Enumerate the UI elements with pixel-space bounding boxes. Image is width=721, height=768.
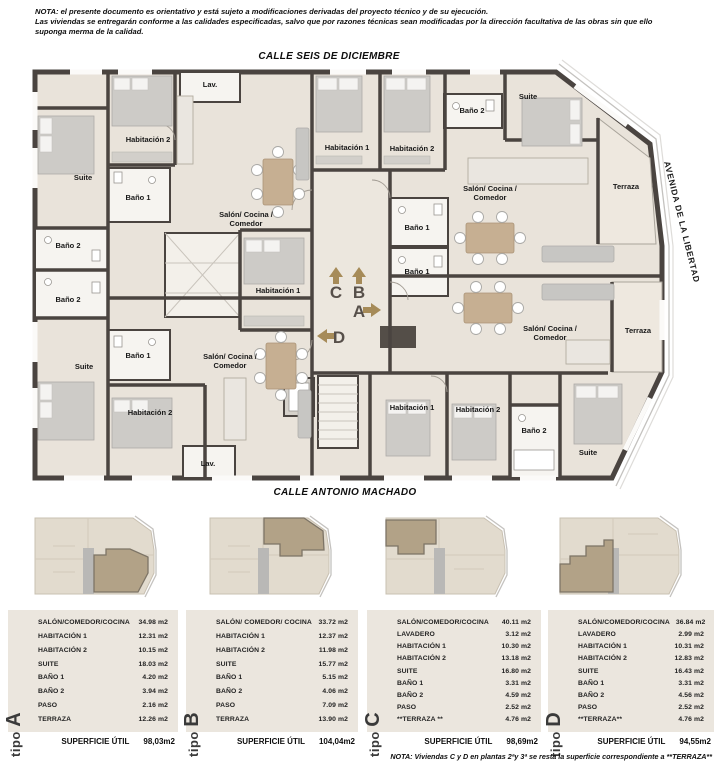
room-label-bano2-b: Baño 2 xyxy=(459,106,484,115)
thumbnail-tipo-b xyxy=(210,516,331,597)
thumbnail-tipo-d xyxy=(560,516,681,597)
corridor xyxy=(312,170,390,373)
room-label-bano2-a: Baño 2 xyxy=(521,426,546,435)
unit-marker-c: C xyxy=(330,283,342,302)
type-table-a: SALÓN/COMEDOR/COCINA34.98 m2 HABITACIÓN … xyxy=(8,610,178,768)
unit-marker-a: A xyxy=(353,302,365,321)
thumbnail-tipo-a xyxy=(35,516,156,597)
unit-marker-d: D xyxy=(333,328,345,347)
room-label-lav-c: Lav. xyxy=(203,80,217,89)
room-label-hab2-a: Habitación 2 xyxy=(456,405,501,414)
area-table-b: SALÓN/ COMEDOR/ COCINA33.72 m2 HABITACIÓ… xyxy=(186,610,358,732)
room-label-salon-d2: Comedor xyxy=(214,361,247,370)
total-area-c: SUPERFICIE ÚTIL98,69m2 xyxy=(424,737,538,746)
tipo-label-d: tipo D xyxy=(543,712,566,757)
total-area-d: SUPERFICIE ÚTIL94,55m2 xyxy=(597,737,711,746)
street-label-right: AVENIDA DE LA LIBERTAD xyxy=(662,160,702,284)
room-label-bano1-a: Baño 1 xyxy=(404,267,429,276)
unit-marker-b: B xyxy=(353,283,365,302)
type-table-b: SALÓN/ COMEDOR/ COCINA33.72 m2 HABITACIÓ… xyxy=(186,610,358,768)
stairwell-left xyxy=(165,233,240,317)
room-label-hab2-d: Habitación 2 xyxy=(128,408,173,417)
room-label-salon-d: Salón/ Cocina / xyxy=(203,352,258,361)
room-label-terraza-a: Terraza xyxy=(625,326,652,335)
area-table-c: SALÓN/COMEDOR/COCINA40.11 m2 LAVADERO3.1… xyxy=(367,610,541,732)
room-label-hab1-a: Habitación 1 xyxy=(390,403,435,412)
room-label-suite-a: Suite xyxy=(579,448,597,457)
area-table-d: SALÓN/COMEDOR/COCINA36.84 m2 LAVADERO2.9… xyxy=(548,610,714,732)
room-label-hab1-b: Habitación 1 xyxy=(325,143,370,152)
room-label-hab2-c: Habitación 2 xyxy=(126,135,171,144)
total-area-b: SUPERFICIE ÚTIL104,04m2 xyxy=(237,737,355,746)
room-label-bano2-d: Baño 2 xyxy=(55,295,80,304)
room-label-suite-b: Suite xyxy=(519,92,537,101)
room-label-salon-a2: Comedor xyxy=(534,333,567,342)
service-shaft xyxy=(380,326,416,348)
room-label-suite-c: Suite xyxy=(74,173,92,182)
thumbnail-tipo-c xyxy=(386,516,507,597)
type-table-c: SALÓN/COMEDOR/COCINA40.11 m2 LAVADERO3.1… xyxy=(367,610,541,768)
room-label-lav-d: Lav. xyxy=(201,459,215,468)
total-area-a: SUPERFICIE ÚTIL98,03m2 xyxy=(61,737,175,746)
tipo-label-b: tipo B xyxy=(181,712,204,757)
room-label-hab1-d: Habitación 1 xyxy=(256,286,301,295)
room-label-salon-c2: Comedor xyxy=(230,219,263,228)
room-label-bano1-d: Baño 1 xyxy=(125,351,150,360)
room-label-bano1-c: Baño 1 xyxy=(125,193,150,202)
tipo-label-a: tipo A xyxy=(3,712,26,757)
street-label-top: CALLE SEIS DE DICIEMBRE xyxy=(258,51,399,62)
stairwell-center xyxy=(318,376,358,448)
room-label-salon-c: Salón/ Cocina / xyxy=(219,210,274,219)
room-label-salon-b: Salón/ Cocina / xyxy=(463,184,518,193)
footer-note: NOTA: Viviendas C y D en plantas 2ªy 3ª … xyxy=(290,752,712,761)
room-label-bano1-b: Baño 1 xyxy=(404,223,429,232)
room-label-salon-b2: Comedor xyxy=(474,193,507,202)
room-label-bano2-c: Baño 2 xyxy=(55,241,80,250)
room-label-suite-d: Suite xyxy=(75,362,93,371)
area-table-a: SALÓN/COMEDOR/COCINA34.98 m2 HABITACIÓN … xyxy=(8,610,178,732)
room-label-terraza-b: Terraza xyxy=(613,182,640,191)
type-table-d: SALÓN/COMEDOR/COCINA36.84 m2 LAVADERO2.9… xyxy=(548,610,714,768)
room-label-hab2-b: Habitación 2 xyxy=(390,144,435,153)
room-label-salon-a: Salón/ Cocina / xyxy=(523,324,578,333)
tipo-label-c: tipo C xyxy=(362,712,385,757)
street-label-bottom: CALLE ANTONIO MACHADO xyxy=(274,487,417,498)
